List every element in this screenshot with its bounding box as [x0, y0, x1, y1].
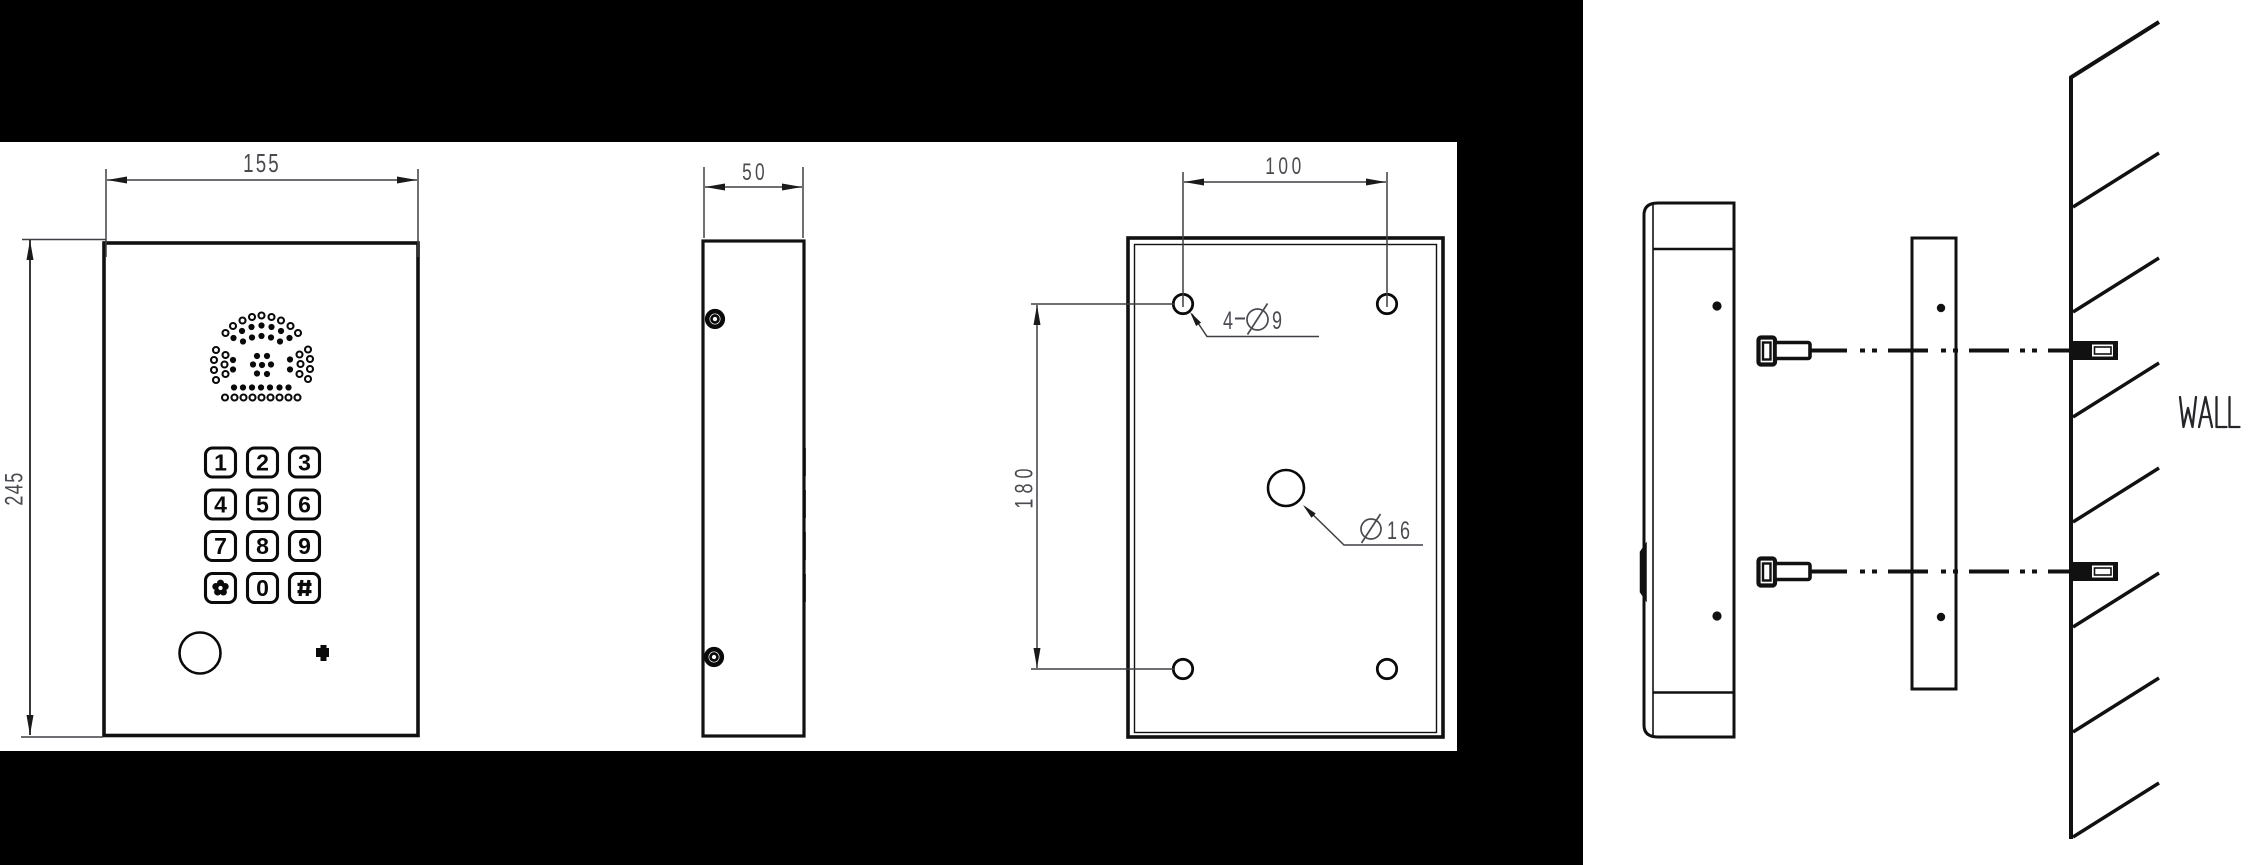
svg-text:50: 50: [742, 159, 768, 185]
svg-text:3: 3: [298, 450, 311, 476]
svg-text:245: 245: [0, 471, 28, 505]
svg-text:4: 4: [214, 492, 227, 518]
svg-text:9: 9: [1272, 306, 1282, 335]
svg-text:4: 4: [1223, 306, 1233, 335]
svg-text:7: 7: [214, 533, 227, 559]
svg-text:155: 155: [243, 148, 281, 178]
svg-text:1: 1: [214, 450, 227, 476]
svg-text:9: 9: [298, 533, 311, 559]
svg-text:6: 6: [298, 492, 311, 518]
svg-text:6: 6: [1400, 516, 1410, 545]
svg-text:0: 0: [256, 575, 269, 601]
svg-text:180: 180: [1010, 463, 1039, 508]
svg-text:1: 1: [1387, 516, 1397, 545]
svg-text:100: 100: [1265, 153, 1305, 179]
svg-text:5: 5: [256, 492, 269, 518]
svg-text:8: 8: [256, 533, 269, 559]
svg-text:2: 2: [256, 450, 269, 476]
